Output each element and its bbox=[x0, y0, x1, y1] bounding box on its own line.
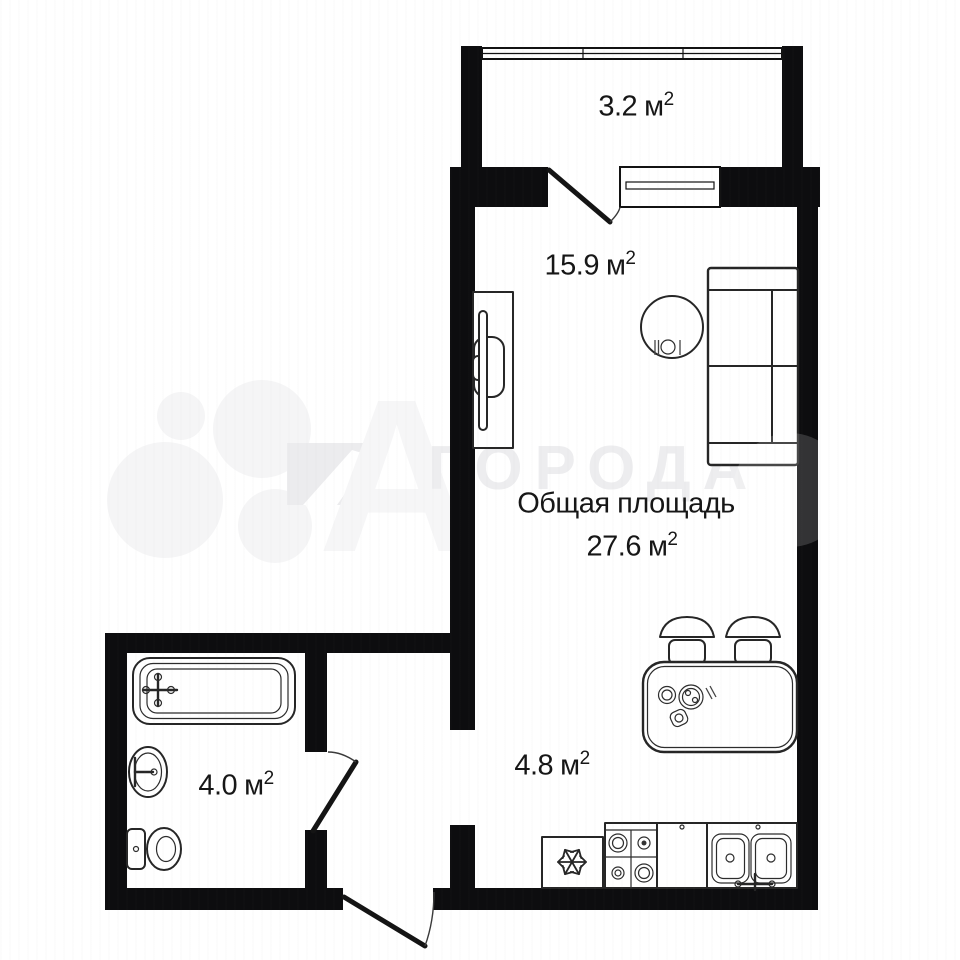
kitchen-area-label: 4.8м2 bbox=[514, 750, 589, 783]
balcony-area-label: 3.2м2 bbox=[598, 91, 673, 124]
total-area-title: Общая площадь bbox=[517, 488, 735, 521]
living-room-area-label: 15.9м2 bbox=[545, 250, 636, 283]
total-area-value: 27.6м2 bbox=[587, 531, 678, 564]
labels: 3.2м2 15.9м2 Общая площадь 27.6м2 4.8м2 … bbox=[0, 0, 960, 960]
bathroom-area-label: 4.0м2 bbox=[198, 770, 273, 803]
floor-plan-image: А ГОРОДА bbox=[0, 0, 960, 960]
